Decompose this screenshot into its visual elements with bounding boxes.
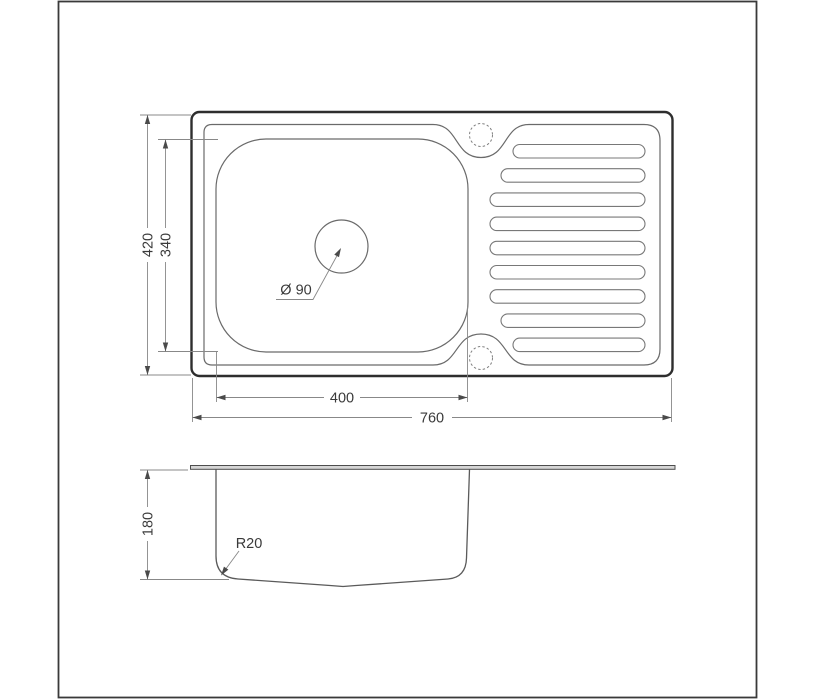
drainboard-slot xyxy=(490,266,645,280)
dim-label-bottom-radius: R20 xyxy=(236,536,263,552)
dim-label-bowl-depth: 180 xyxy=(141,512,157,536)
dimension-bowl-height: 340 xyxy=(158,140,218,352)
dimension-arrow xyxy=(193,415,202,420)
dimension-arrow xyxy=(663,415,672,420)
dimension-arrow xyxy=(145,366,150,375)
drainboard-slot xyxy=(490,290,645,304)
sink-outer-edge xyxy=(192,112,673,376)
dim-label-bowl-width: 400 xyxy=(330,391,354,407)
plan-view: 420 340 400 xyxy=(140,112,673,427)
section-view: 180 R20 xyxy=(140,466,675,587)
callout-drain-diameter: Ø 90 xyxy=(276,247,343,300)
drainboard-slot xyxy=(490,217,645,231)
dimension-arrow xyxy=(145,115,150,124)
dimension-arrow xyxy=(145,571,150,580)
dimension-bowl-width: 400 xyxy=(217,306,468,407)
dim-label-overall-width: 760 xyxy=(420,411,444,427)
drainboard-slot xyxy=(513,338,645,352)
section-rim-flange xyxy=(191,466,676,470)
drawing-sheet: 420 340 400 xyxy=(0,0,816,700)
dimension-arrow xyxy=(163,140,168,149)
dimension-arrow xyxy=(163,343,168,352)
drain-hole xyxy=(315,220,368,273)
drainboard-slot xyxy=(501,314,645,328)
basin-outline xyxy=(216,139,468,352)
faucet-hole-top xyxy=(470,124,493,147)
drainboard-slot xyxy=(513,145,645,159)
drawing-frame xyxy=(59,2,757,698)
dimension-arrow xyxy=(145,470,150,479)
drainboard-slot xyxy=(490,193,645,207)
faucet-hole-bottom xyxy=(470,347,493,370)
dim-label-drain-diameter: Ø 90 xyxy=(280,283,311,299)
sink-drawing-svg: 420 340 400 xyxy=(0,0,816,700)
drainboard-slot xyxy=(501,169,645,183)
drainboard-slot xyxy=(490,241,645,255)
callout-bottom-radius: R20 xyxy=(219,536,263,577)
drainboard xyxy=(490,145,645,352)
dimension-arrow xyxy=(459,395,468,400)
dim-label-bowl-height: 340 xyxy=(159,233,175,257)
dimension-overall-width: 760 xyxy=(193,378,672,427)
leader-arrow xyxy=(334,247,343,257)
dim-label-overall-height: 420 xyxy=(141,233,157,257)
section-bowl-profile xyxy=(216,470,470,587)
sink-inner-rim xyxy=(204,125,660,366)
dimension-arrow xyxy=(217,395,226,400)
